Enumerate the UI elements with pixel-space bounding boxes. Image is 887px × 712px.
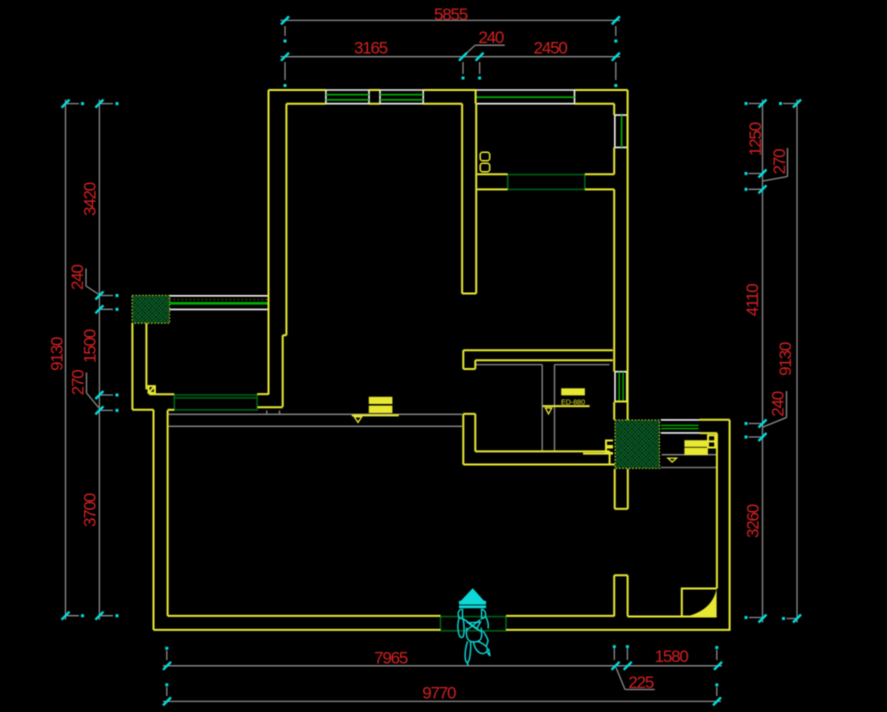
svg-text:9130: 9130 [48,337,67,371]
svg-text:3165: 3165 [354,39,388,58]
svg-text:3260: 3260 [744,504,763,538]
svg-text:5855: 5855 [434,5,468,24]
svg-text:ED-880: ED-880 [561,400,585,407]
svg-text:3700: 3700 [81,493,100,527]
svg-text:240: 240 [769,391,788,417]
svg-text:1500: 1500 [81,329,100,363]
svg-text:225: 225 [628,673,654,692]
svg-text:1580: 1580 [655,647,689,666]
svg-text:3420: 3420 [81,182,100,216]
svg-text:240: 240 [68,264,87,290]
svg-text:270: 270 [69,370,88,396]
svg-text:9770: 9770 [422,684,456,703]
svg-text:2450: 2450 [534,39,568,58]
svg-text:7965: 7965 [374,648,408,667]
svg-text:270: 270 [770,149,789,175]
svg-text:4110: 4110 [743,284,762,317]
svg-text:1250: 1250 [746,122,765,156]
svg-text:9130: 9130 [776,342,795,376]
svg-text:240: 240 [478,28,504,47]
